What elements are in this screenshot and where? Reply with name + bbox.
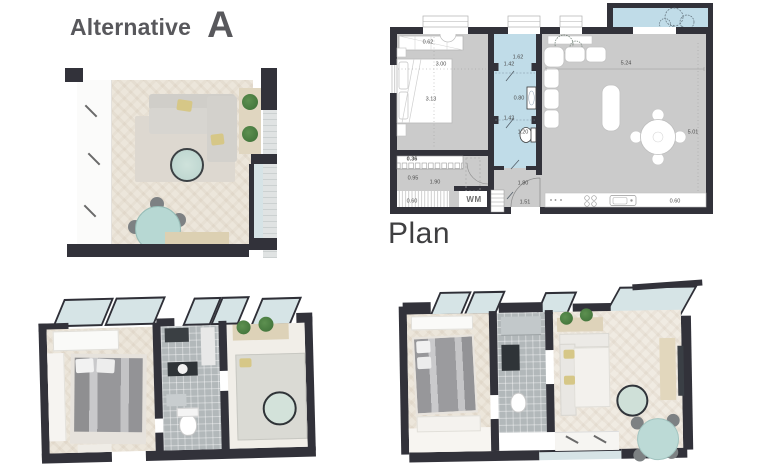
dim-kitchen-counter: 0.60	[670, 199, 681, 205]
kitchen-counter	[555, 431, 619, 451]
sofa-seat	[573, 347, 610, 408]
dim-living-width: 5.24	[621, 61, 632, 67]
wall-bottom	[42, 452, 112, 464]
dim-wardrobe-depth: 0.36	[407, 157, 418, 163]
plan-caption: Plan	[388, 217, 450, 251]
pillow	[416, 341, 431, 354]
entry-stairs	[491, 190, 504, 212]
wall-bath-living	[218, 321, 227, 371]
dim-closet-depth: 0.62	[423, 40, 434, 46]
dim-bath-width: 1.42	[504, 62, 515, 68]
throw-pillow	[239, 358, 251, 367]
sofa-pillow	[564, 376, 575, 385]
render-living-room-top-view	[65, 68, 277, 258]
dim-bedroom-width: 3.00	[436, 62, 447, 68]
toilet	[510, 392, 526, 412]
washing-machine-label: WM	[466, 196, 481, 204]
page-title: Alternative A	[70, 6, 234, 43]
pillow	[75, 358, 94, 373]
wardrobe	[411, 315, 473, 330]
bed	[412, 334, 478, 415]
sofa-pillow	[563, 350, 574, 359]
kitchen-sink	[610, 196, 636, 206]
dim-corridor-width: 1.80	[518, 181, 529, 187]
sofa-pillow	[210, 133, 224, 146]
bed-bench	[78, 444, 112, 453]
wall-bottom	[67, 244, 249, 257]
kitchen-counter	[77, 80, 112, 244]
dim-wc-length: 1.20	[518, 130, 529, 136]
sideboard	[165, 232, 229, 244]
tv-cabinet	[659, 338, 676, 400]
sink	[527, 87, 536, 109]
balcony-door-opening	[633, 27, 676, 34]
tv-screen	[677, 346, 684, 396]
dim-bath-mid: 0.80	[514, 96, 525, 102]
nightstand	[397, 48, 406, 57]
dim-living-length: 5.01	[688, 130, 699, 136]
bath-mat	[166, 394, 186, 407]
render-apartment-overview	[396, 289, 707, 470]
dim-bedroom-length: 3.13	[426, 97, 437, 103]
nightstand	[397, 124, 406, 136]
wall-bath-living	[546, 384, 555, 432]
toilet-tank	[531, 128, 536, 142]
wall-corner	[403, 302, 431, 314]
entry-door-opening	[511, 207, 540, 214]
pillow	[96, 358, 115, 373]
wall-bedroom-bath	[491, 419, 500, 451]
bedroom-cabinet	[47, 353, 66, 441]
sofa-chaise	[207, 96, 237, 162]
wardrobe	[53, 330, 120, 352]
pillow	[417, 357, 432, 370]
presentation-canvas: Alternative A	[0, 0, 780, 470]
wall-bath-living	[545, 310, 554, 350]
toilet-tank	[177, 408, 199, 418]
sofa-seat	[149, 108, 209, 134]
dim-hall-window: 0.60	[407, 199, 418, 205]
wall-segment	[261, 68, 277, 110]
floor-plan-panel: 0.62 3.00 3.13 1.62 1.42 0.80 1.42 1.20 …	[388, 3, 724, 255]
bed-frame	[70, 354, 147, 445]
dim-wc-width: 1.42	[504, 116, 515, 122]
pillow	[399, 62, 408, 89]
potted-plant	[242, 94, 258, 110]
dresser	[417, 415, 481, 432]
coffee-table	[602, 85, 620, 131]
title-text: Alternative	[70, 6, 191, 41]
dim-hall-length: 1.90	[430, 180, 441, 186]
dim-hall-width: 0.95	[408, 176, 419, 182]
sofa-pillow	[176, 99, 192, 112]
balcony-floor	[263, 110, 277, 258]
floor-plan-drawing	[388, 3, 718, 219]
vanity	[501, 345, 519, 371]
coffee-table	[170, 148, 204, 182]
dim-bath-entry: 1.62	[513, 55, 524, 61]
dim-corridor-length: 1.51	[520, 200, 531, 206]
render-bedroom-bathroom	[38, 292, 324, 470]
shelf	[548, 36, 592, 44]
vanity-sink	[178, 364, 188, 374]
tall-cabinet	[201, 327, 216, 365]
plan-kitchen	[545, 193, 706, 207]
wall-bedroom-bath	[489, 311, 498, 395]
wall-corner	[65, 68, 83, 82]
wall-segment	[251, 154, 277, 164]
vanity	[167, 362, 197, 377]
wall-segment	[249, 238, 277, 250]
wall-bedroom-bath	[155, 432, 164, 452]
shower-zone	[501, 316, 541, 336]
potted-plant	[242, 126, 258, 142]
wall-bath-living	[220, 391, 230, 451]
title-variant: A	[207, 6, 234, 43]
balcony-door-glass	[254, 164, 263, 240]
bath-cabinet	[165, 328, 189, 343]
